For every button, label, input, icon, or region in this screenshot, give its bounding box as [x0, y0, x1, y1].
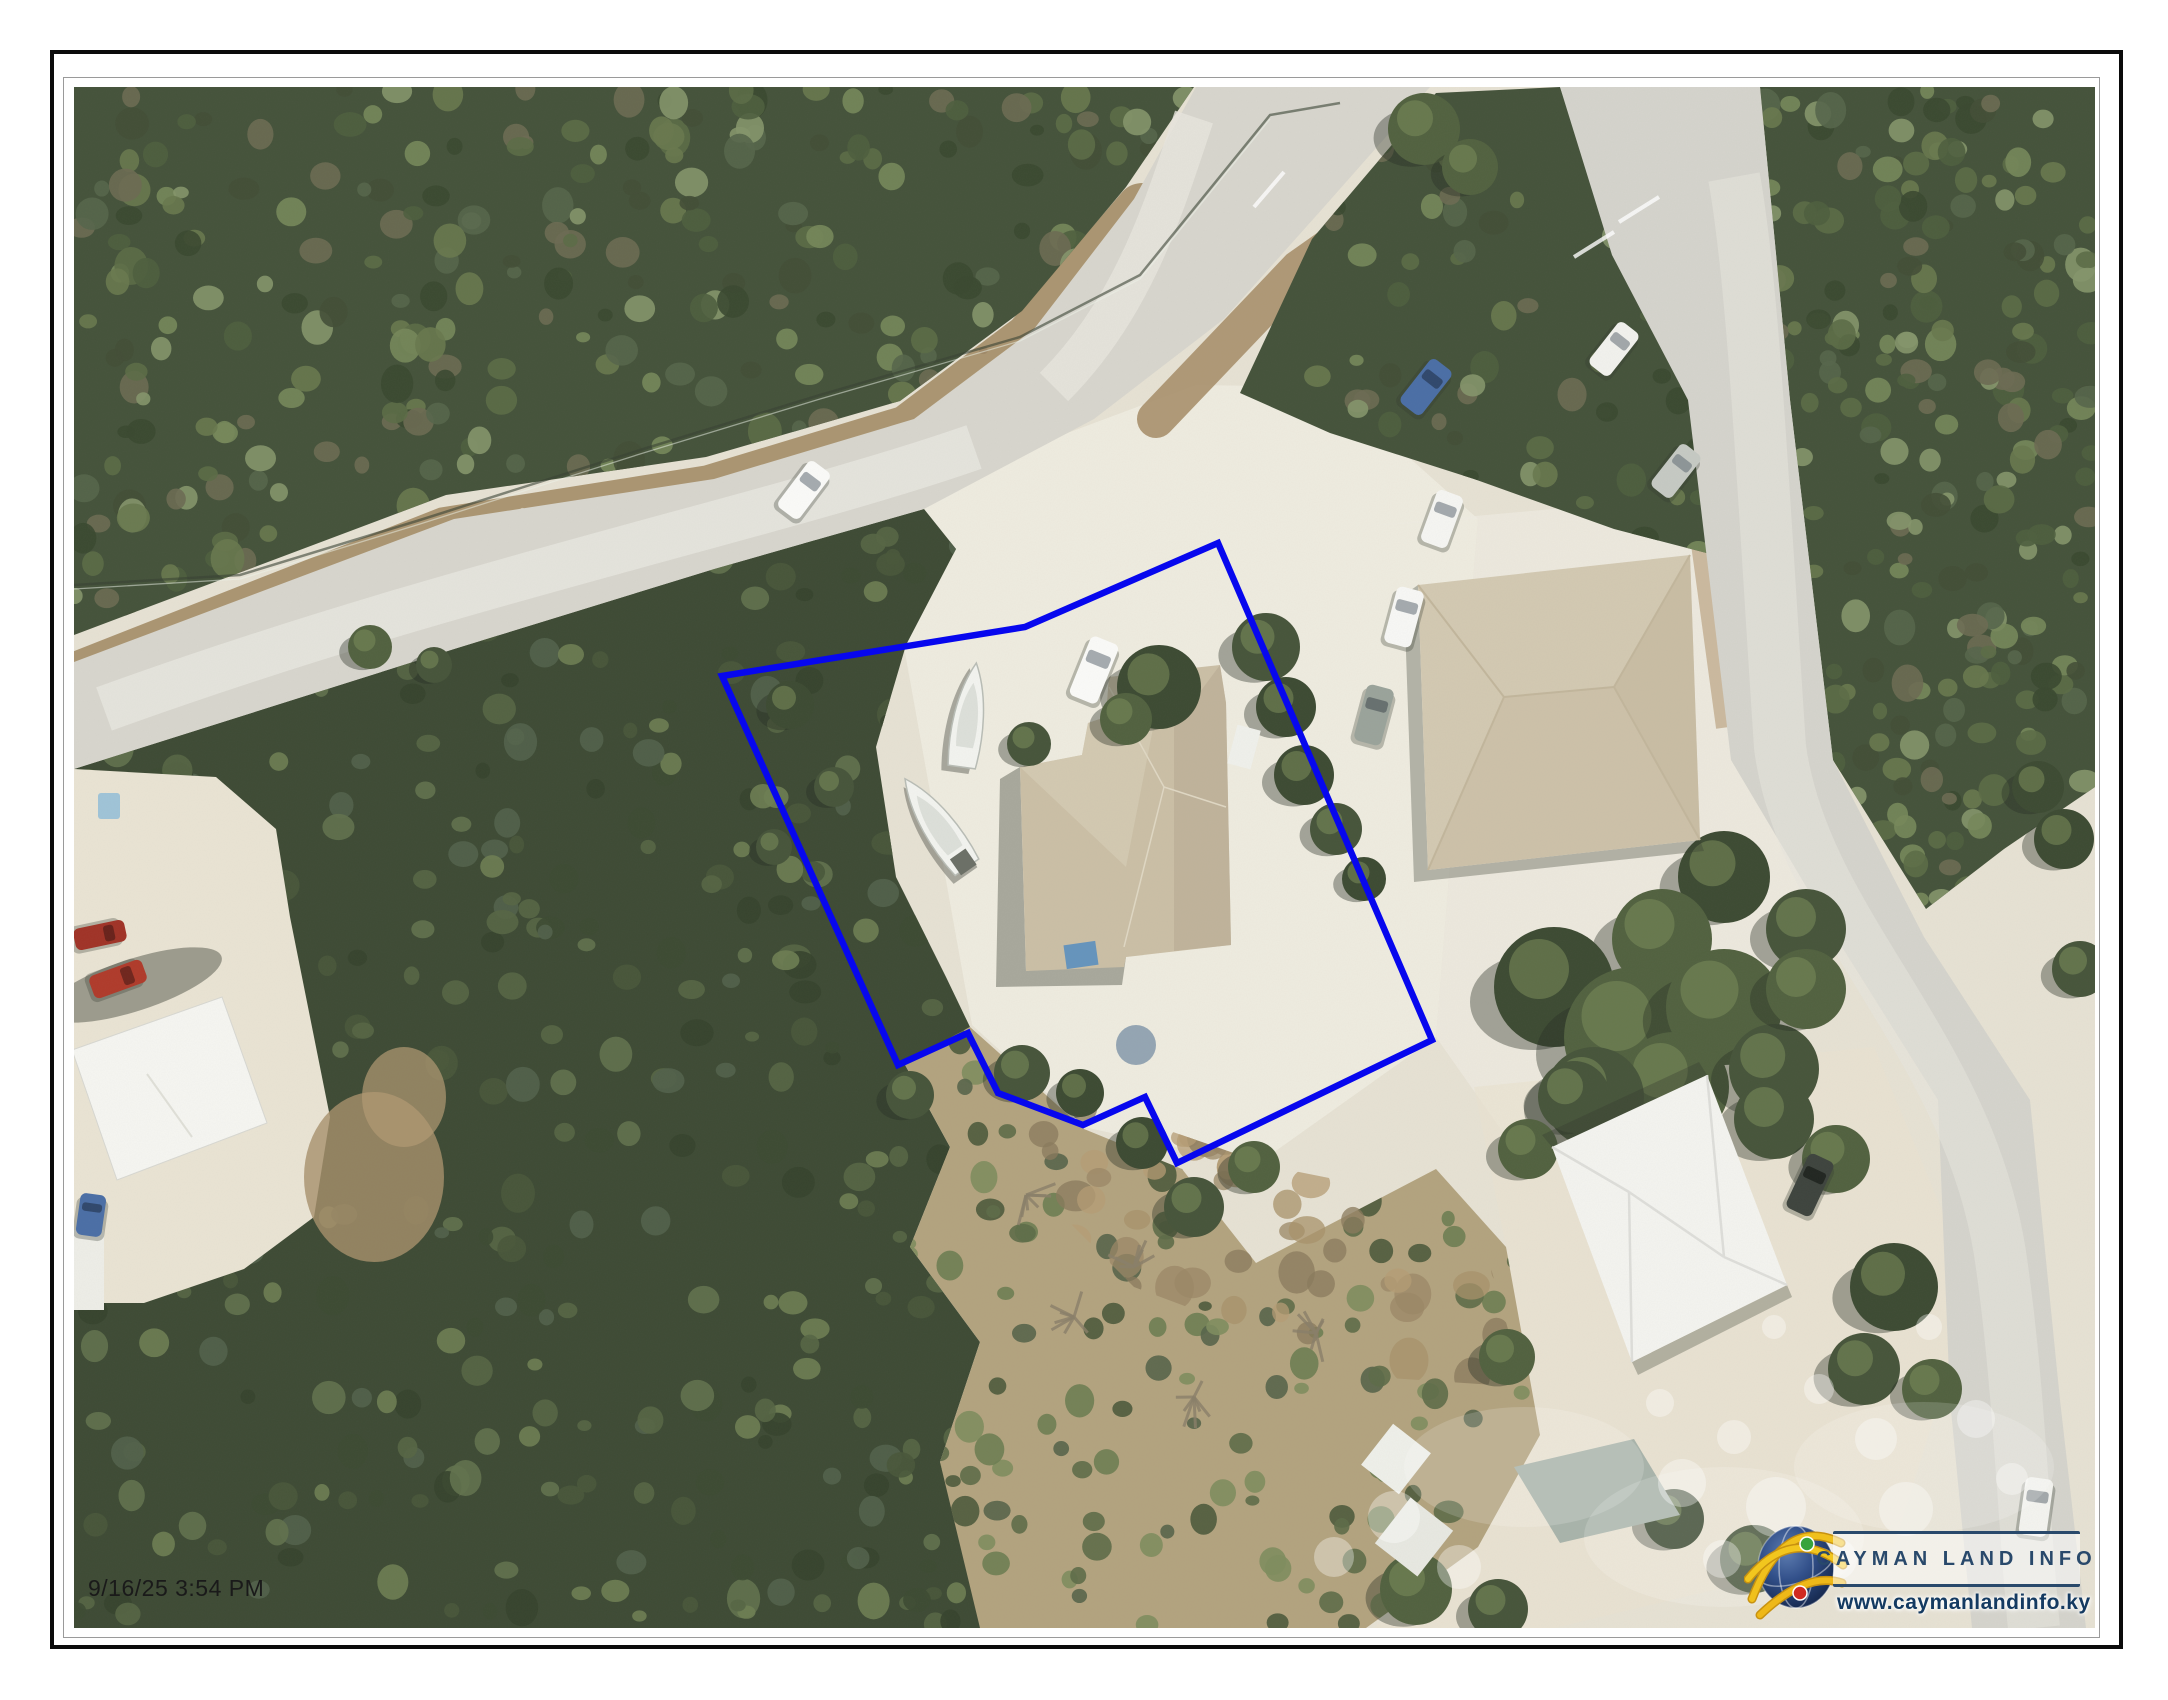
red-dot — [1793, 1586, 1807, 1600]
logo-url: www.caymanlandinfo.ky — [1837, 1591, 2082, 1615]
cayman-land-info-logo: CAYMAN LAND INFO www.caymanlandinfo.ky — [1659, 1505, 2095, 1628]
logo-banner: CAYMAN LAND INFO — [1833, 1531, 2080, 1587]
green-dot — [1800, 1537, 1814, 1551]
logo-title: CAYMAN LAND INFO — [1816, 1548, 2095, 1571]
aerial-map: 9/16/25 3:54 PM CAYMAN LAND INFO www.cay… — [74, 87, 2095, 1628]
photo-grain-texture — [74, 87, 2095, 1628]
timestamp-label: 9/16/25 3:54 PM — [88, 1575, 264, 1602]
map-scene — [74, 87, 2095, 1628]
